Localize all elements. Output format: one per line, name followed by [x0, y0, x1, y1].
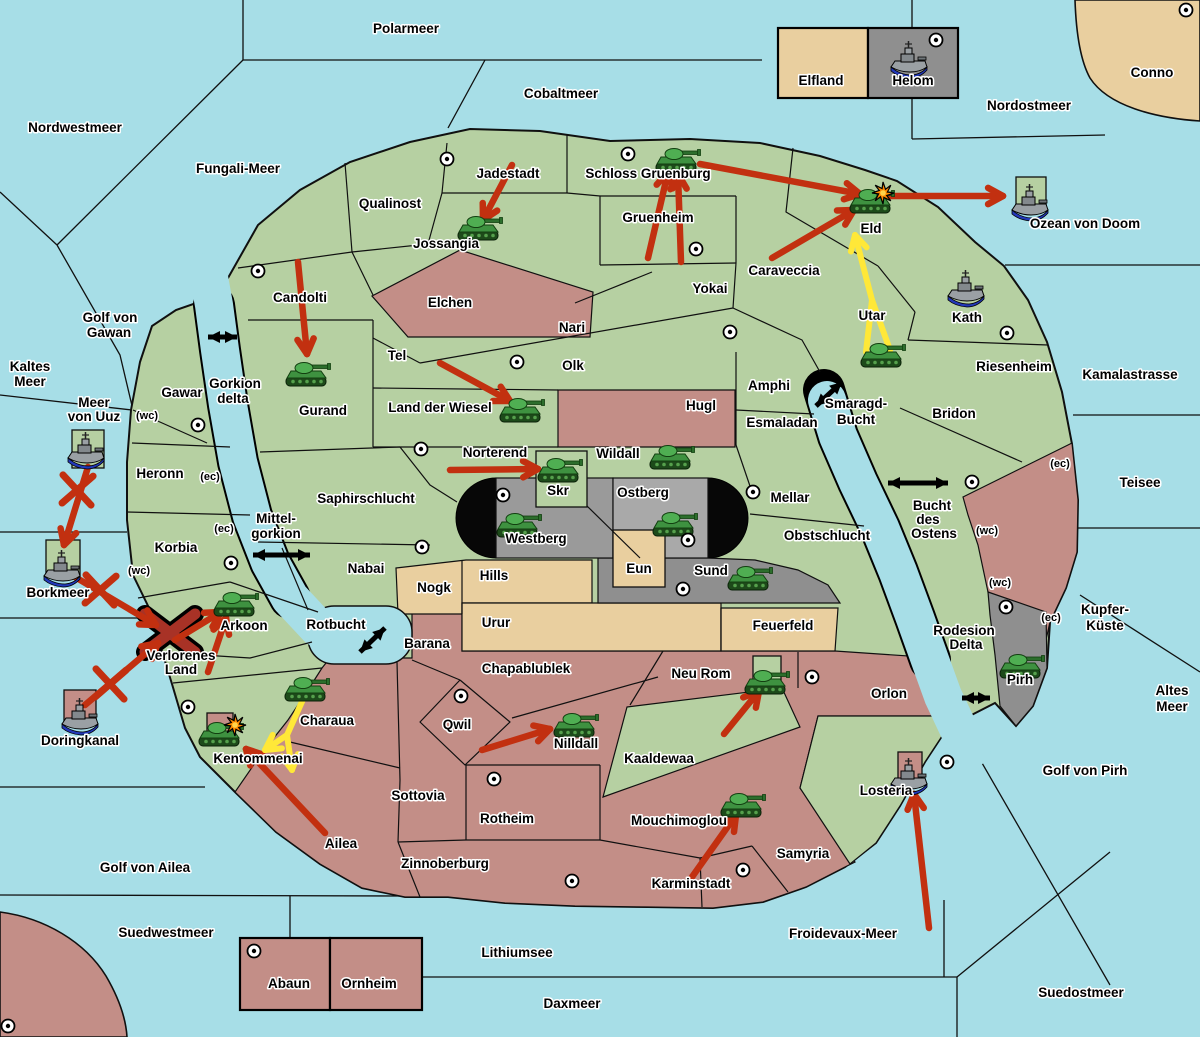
territory-marker[interactable]: [724, 326, 737, 339]
territory-label: Amphi: [748, 378, 790, 393]
territory-marker[interactable]: [677, 583, 690, 596]
sea-label: Suedostmeer: [1038, 985, 1124, 1000]
territory-label: Saphirschlucht: [317, 491, 415, 506]
territory-label: Charaua: [300, 713, 355, 728]
territory-marker[interactable]: [488, 773, 501, 786]
territory-marker[interactable]: [225, 557, 238, 570]
sea-label: Rotbucht: [306, 617, 366, 632]
sea-label: Nordwestmeer: [28, 120, 123, 135]
territory-marker[interactable]: [747, 486, 760, 499]
territory-label: Abaun: [268, 976, 310, 991]
coast-tag-label: (wc): [136, 410, 158, 422]
territory-label: Candolti: [273, 290, 327, 305]
sea-label: Nordostmeer: [987, 98, 1072, 113]
territory-label: Korbia: [155, 540, 198, 555]
territory-label: Samyria: [777, 846, 830, 861]
game-map: PolarmeerNordwestmeerFungali-MeerCobaltm…: [0, 0, 1200, 1037]
territory-label: Feuerfeld: [753, 618, 814, 633]
sea-label: Golf von Ailea: [100, 860, 191, 875]
island-ornheim[interactable]: [330, 938, 422, 1010]
territory-label: Olk: [562, 358, 584, 373]
sea-label: Meer: [78, 395, 110, 410]
territory-label: Yokai: [692, 281, 727, 296]
territory-label: Bridon: [932, 406, 976, 421]
territory-label: Schloss Gruenburg: [585, 166, 710, 181]
sea-label: Delta: [949, 637, 983, 652]
territory-marker[interactable]: [682, 534, 695, 547]
sea-label: gorkion: [251, 526, 301, 541]
sea-label: Fungali-Meer: [196, 161, 281, 176]
territory-label: Esmaladan: [746, 415, 817, 430]
territory-marker[interactable]: [415, 443, 428, 456]
sea-label: Kamalastrasse: [1082, 367, 1178, 382]
sea-label: Meer: [1156, 699, 1188, 714]
explosion-icon: [872, 182, 894, 204]
territory-label: Nari: [559, 320, 585, 335]
territory-label: Neu Rom: [671, 666, 730, 681]
territory-marker[interactable]: [1001, 327, 1014, 340]
territory-label: Land: [165, 662, 197, 677]
coast-tag-label: (wc): [128, 565, 150, 577]
territory-marker[interactable]: [806, 671, 819, 684]
territory-label: Gurand: [299, 403, 347, 418]
territory-label: Gruenheim: [622, 210, 693, 225]
territory-label: Riesenheim: [976, 359, 1052, 374]
territory-marker[interactable]: [441, 153, 454, 166]
territory-marker[interactable]: [511, 356, 524, 369]
territory-label: Nilldall: [554, 736, 598, 751]
territory-label: Hugl: [686, 398, 716, 413]
territory-marker[interactable]: [497, 489, 510, 502]
territory-label: Caraveccia: [748, 263, 820, 278]
territory-marker[interactable]: [416, 541, 429, 554]
sea-label: Doringkanal: [41, 733, 119, 748]
territory-label: Jadestadt: [476, 166, 540, 181]
territory-label: Eun: [626, 561, 652, 576]
territory-label: Orlon: [871, 686, 907, 701]
sea-label: delta: [217, 391, 249, 406]
territory-marker[interactable]: [930, 34, 943, 47]
coast-tag-label: (ec): [214, 523, 234, 535]
territory-label: Ostberg: [617, 485, 669, 500]
territory-label: Chapablublek: [482, 661, 571, 676]
coast-tag-label: (wc): [989, 577, 1011, 589]
territory-label: Zinnoberburg: [401, 856, 489, 871]
territory-marker[interactable]: [622, 148, 635, 161]
territory-label: Hills: [480, 568, 509, 583]
territory-label: Urur: [482, 615, 511, 630]
sea-label: Mittel-: [256, 511, 296, 526]
territory-marker[interactable]: [455, 690, 468, 703]
territory-label: Rotheim: [480, 811, 534, 826]
sea-label: Smaragd-: [825, 396, 887, 411]
coast-tag-label: (ec): [200, 471, 220, 483]
sea-label: Teisee: [1119, 475, 1161, 490]
territory-label: Land der Wiesel: [388, 400, 491, 415]
sea-label: Gawan: [87, 325, 131, 340]
territory-label: Kentommenai: [213, 751, 302, 766]
territory-label: Arkoon: [220, 618, 267, 633]
map-canvas[interactable]: PolarmeerNordwestmeerFungali-MeerCobaltm…: [0, 0, 1200, 1037]
territory-label: Qwil: [443, 717, 472, 732]
territory-label: Eld: [860, 221, 881, 236]
territory-label: Skr: [547, 483, 570, 498]
territory-label: Pirh: [1007, 672, 1033, 687]
sea-label: Polarmeer: [373, 21, 440, 36]
sea-label: von Uuz: [68, 409, 121, 424]
territory-label: Helom: [892, 73, 933, 88]
territory-label: Norterend: [463, 445, 528, 460]
sea-label: Kupfer-: [1081, 602, 1129, 617]
territory-label: Sottovia: [391, 788, 445, 803]
territory-label: Heronn: [136, 466, 183, 481]
territory-label: Ailea: [325, 836, 358, 851]
territory-marker[interactable]: [1000, 601, 1013, 614]
territory-label: Ornheim: [341, 976, 397, 991]
sea-label: Borkmeer: [26, 585, 90, 600]
territory-marker[interactable]: [182, 701, 195, 714]
sea-label: Kaltes: [10, 359, 51, 374]
sea-label: Suedwestmeer: [118, 925, 214, 940]
coast-tag-label: (wc): [976, 525, 998, 537]
explosion-icon: [224, 714, 246, 736]
territory-label: Elchen: [428, 295, 472, 310]
coast-tag-label: (ec): [1050, 458, 1070, 470]
sea-label: Froidevaux-Meer: [789, 926, 898, 941]
sea-label: Gorkion: [209, 376, 261, 391]
territory-marker[interactable]: [690, 243, 703, 256]
territory-label: Barana: [404, 636, 450, 651]
territory-label: Jossangia: [413, 236, 480, 251]
territory-label: Sund: [694, 563, 728, 578]
territory-label: Elfland: [798, 73, 843, 88]
territory-label: Conno: [1131, 65, 1174, 80]
sea-label: des: [916, 512, 939, 527]
sea-label: Küste: [1086, 618, 1124, 633]
territory-label: Gawar: [161, 385, 203, 400]
territory-label: Tel: [388, 348, 407, 363]
sea-label: Ostens: [911, 526, 957, 541]
territory-marker[interactable]: [1180, 4, 1193, 17]
sea-label: Altes: [1155, 683, 1188, 698]
sea-label: Lithiumsee: [481, 945, 553, 960]
sea-label: Bucht: [913, 498, 952, 513]
sea-label: Cobaltmeer: [524, 86, 599, 101]
sea-label: Golf von: [83, 310, 138, 325]
territory-label: Qualinost: [359, 196, 422, 211]
sea-label: Rodesion: [933, 623, 995, 638]
territory-marker[interactable]: [966, 476, 979, 489]
territory-label: Mouchimoglou: [631, 813, 727, 828]
territory-label: Mellar: [770, 490, 810, 505]
territory-label: Nabai: [348, 561, 385, 576]
territory-label: Kath: [952, 310, 982, 325]
territory-marker[interactable]: [941, 756, 954, 769]
territory-label: Westberg: [505, 531, 566, 546]
sea-label: Bucht: [837, 412, 876, 427]
territory-marker[interactable]: [252, 265, 265, 278]
territory-marker[interactable]: [737, 864, 750, 877]
territory-label: Verlorenes: [146, 648, 215, 663]
territory-marker[interactable]: [566, 875, 579, 888]
sea-label: Meer: [14, 374, 46, 389]
sea-label: Ozean von Doom: [1030, 216, 1140, 231]
territory-marker[interactable]: [2, 1020, 15, 1033]
territory-label: Nogk: [417, 580, 451, 595]
coast-tag-label: (ec): [1041, 612, 1061, 624]
territory-label: Karminstadt: [652, 876, 731, 891]
territory-label: Obstschlucht: [784, 528, 871, 543]
territory-marker[interactable]: [248, 945, 261, 958]
territory-label: Losteria: [860, 783, 913, 798]
territory-label: Utar: [858, 308, 886, 323]
territory-label: Wildall: [596, 446, 639, 461]
sea-label: Golf von Pirh: [1043, 763, 1128, 778]
territory-label: Kaaldewaa: [624, 751, 694, 766]
sea-label: Daxmeer: [543, 996, 601, 1011]
territory-marker[interactable]: [192, 419, 205, 432]
